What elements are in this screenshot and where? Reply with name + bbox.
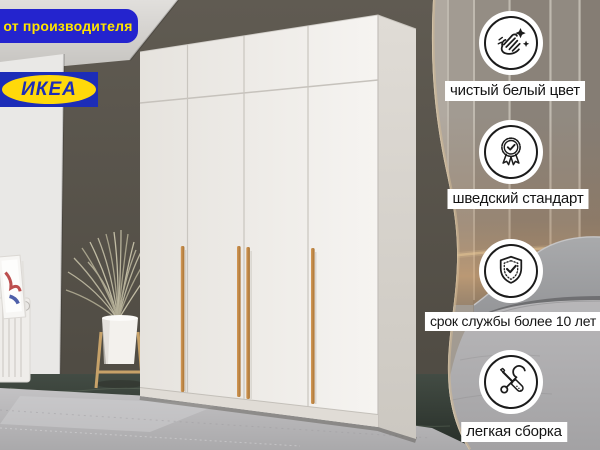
feature-badge-clean-color bbox=[479, 11, 543, 75]
ikea-logo-text: ИКЕА bbox=[0, 72, 98, 107]
medal-check-icon bbox=[492, 133, 530, 171]
wardrobe bbox=[140, 15, 416, 440]
clean-hands-icon bbox=[492, 24, 530, 62]
feature-badge-easy-assembly bbox=[479, 350, 543, 414]
feature-label: срок службы более 10 лет bbox=[425, 312, 600, 331]
feature-badge-swedish-standard bbox=[479, 120, 543, 184]
door-handle bbox=[181, 246, 185, 392]
feature-label: шведский стандарт bbox=[448, 189, 589, 209]
door-handle bbox=[237, 246, 241, 397]
shield-check-icon bbox=[492, 252, 530, 290]
door-handle bbox=[246, 247, 250, 399]
feature-badge-durability bbox=[479, 239, 543, 303]
tools-icon bbox=[492, 363, 530, 401]
wardrobe-front bbox=[140, 15, 378, 427]
picture-frame bbox=[0, 255, 27, 319]
door-handle bbox=[311, 248, 315, 404]
product-card: от производителя ИКЕА чистый белый цвет … bbox=[0, 0, 600, 450]
manufacturer-badge-label: от производителя bbox=[0, 18, 133, 34]
manufacturer-badge: от производителя bbox=[0, 9, 138, 43]
ikea-logo: ИКЕА bbox=[0, 72, 98, 107]
feature-label: чистый белый цвет bbox=[445, 81, 585, 101]
wardrobe-side-panel bbox=[378, 15, 416, 439]
feature-label: легкая сборка bbox=[461, 422, 567, 442]
